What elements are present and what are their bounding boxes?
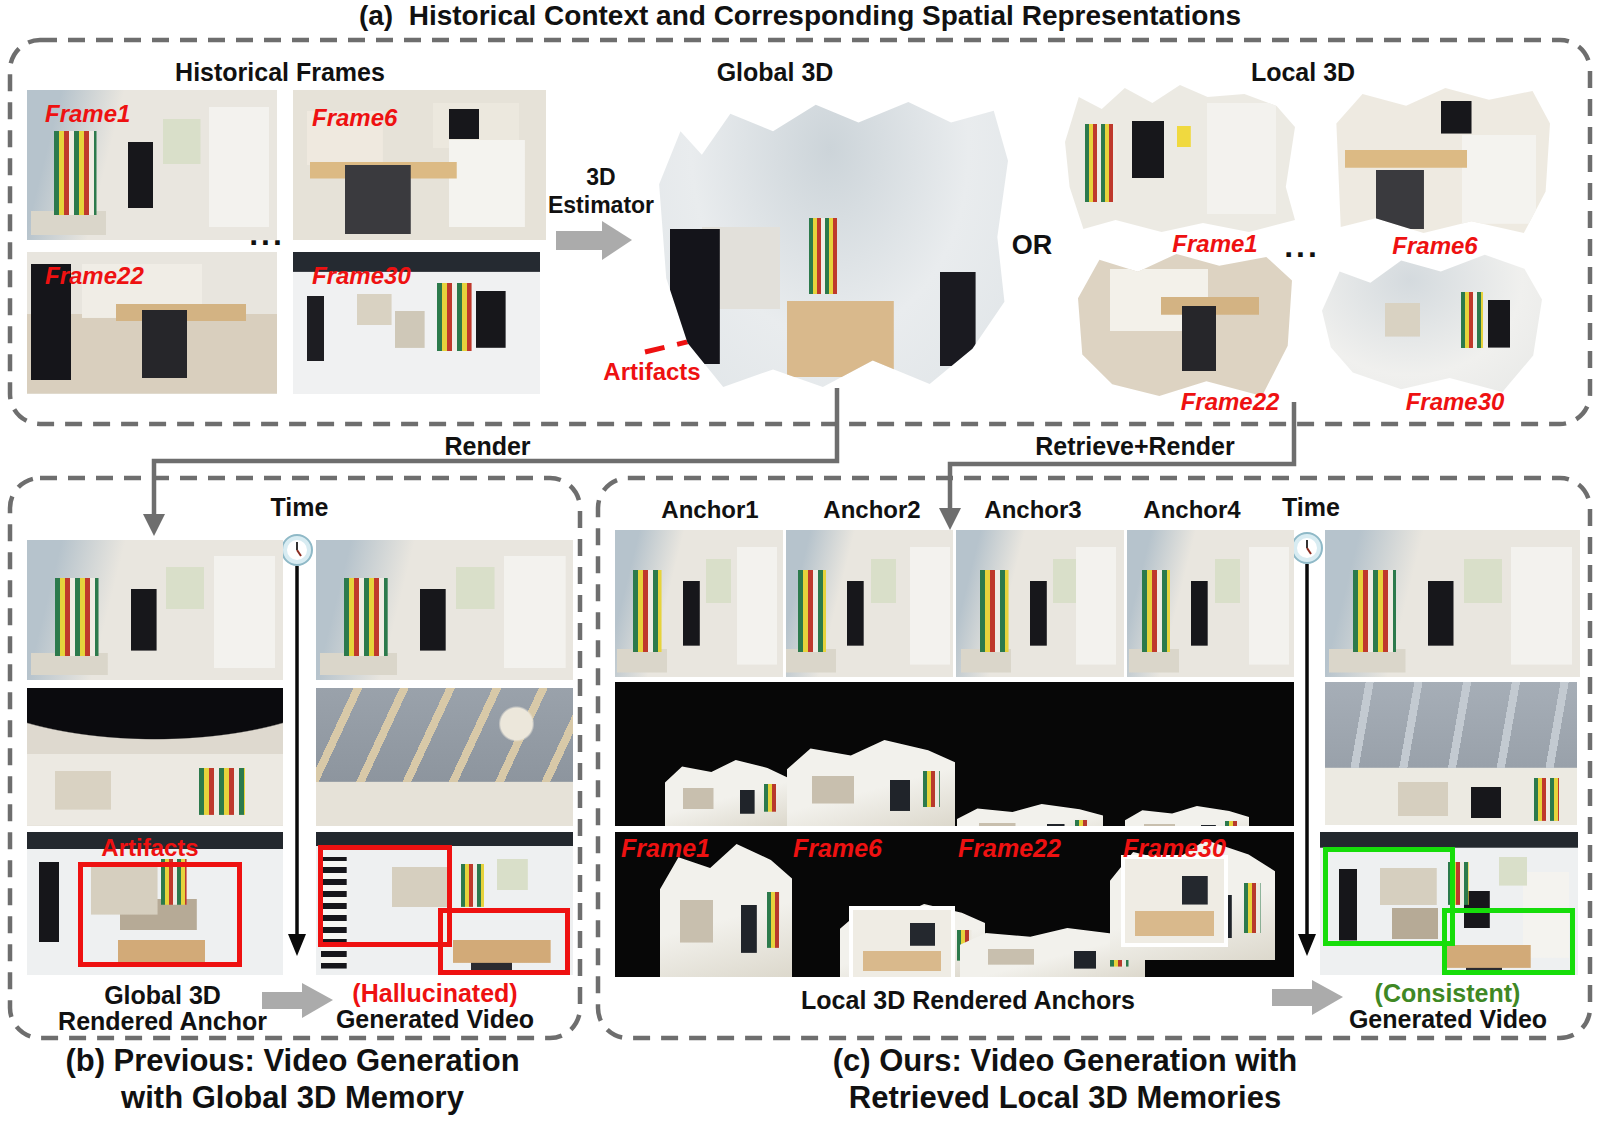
panel-c-arrow-icon [1272, 980, 1343, 1015]
local-3d-frame6-pointcloud [1332, 85, 1550, 233]
panel-b-anchor-frame-2 [27, 688, 283, 826]
estimator-label-line1: 3D [545, 164, 657, 190]
global-anchor-caption-line2: Rendered Anchor [40, 1007, 285, 1036]
strip-frame1-label: Frame1 [621, 834, 751, 863]
panel-b-anchor-frame-1 [27, 540, 283, 680]
artifacts-label-b: Artifacts [95, 834, 205, 862]
pointcloud-fragment [957, 804, 1103, 826]
anchor4-image [1127, 530, 1295, 677]
pointcloud-fragment [787, 740, 955, 826]
panel-b-video-frame-2 [316, 688, 573, 826]
figure-canvas: (a) Historical Context and Corresponding… [0, 0, 1600, 1123]
artifact-box-video-1 [318, 845, 452, 947]
pointcloud-fragment [660, 844, 792, 977]
anchor2-label: Anchor2 [812, 496, 932, 524]
panel-b-video-frame-1 [316, 540, 573, 680]
consistent-box-1 [1323, 847, 1455, 946]
local-3d-frame1-pointcloud [1065, 82, 1295, 232]
local-frame1-label: Frame1 [1155, 230, 1275, 258]
time-arrow-b-arrowhead [288, 934, 306, 956]
estimator-label-line2: Estimator [545, 192, 657, 218]
time-label-b: Time [262, 493, 337, 522]
local-3d-frame30-pointcloud [1322, 252, 1542, 392]
retrieve-connector-arrowhead [939, 508, 961, 530]
retrieved-inset-box-2 [1121, 855, 1228, 947]
generated-video-label-c: Generated Video [1338, 1005, 1558, 1034]
artifact-box-anchor [78, 862, 242, 967]
figure-title: (a) Historical Context and Corresponding… [0, 0, 1600, 32]
global-3d-pointcloud [652, 96, 1008, 390]
frame30-label: Frame30 [312, 262, 462, 290]
time-arrow-c-arrowhead [1298, 934, 1316, 956]
global-anchor-caption-line1: Global 3D [40, 981, 285, 1010]
local-3d-title: Local 3D [1238, 58, 1368, 87]
generated-video-label-b: Generated Video [325, 1005, 545, 1034]
consistent-box-2 [1442, 908, 1575, 975]
anchor2-image [786, 530, 954, 677]
anchor3-image [956, 530, 1124, 677]
historical-frames-ellipsis: ... [232, 216, 302, 253]
strip-frame6-label: Frame6 [793, 834, 923, 863]
strip-frame22-label: Frame22 [958, 834, 1098, 863]
render-label: Render [400, 432, 575, 461]
local-frame6-label: Frame6 [1375, 232, 1495, 260]
consistent-label: (Consistent) [1345, 979, 1550, 1008]
retrieved-inset-box-1 [849, 906, 955, 977]
anchor1-image [615, 530, 783, 677]
frame1-label: Frame1 [45, 100, 175, 128]
anchor3-label: Anchor3 [973, 496, 1093, 524]
panel-c-video-frame-1 [1325, 530, 1580, 677]
local-3d-render-strip-2: Frame1 Frame6 Frame22 Frame30 [615, 832, 1294, 977]
pointcloud-fragment [665, 760, 787, 826]
panel-b-footer-line1: (b) Previous: Video Generation [20, 1043, 565, 1079]
local-anchors-caption: Local 3D Rendered Anchors [768, 986, 1168, 1015]
artifact-box-video-2 [438, 908, 570, 975]
anchor1-label: Anchor1 [650, 496, 770, 524]
local-frame30-label: Frame30 [1390, 388, 1520, 416]
clock-icon-b [282, 535, 312, 565]
strip-frame30-label: Frame30 [1123, 834, 1263, 863]
local-3d-render-strip-1 [615, 682, 1294, 826]
hallucinated-label: (Hallucinated) [330, 979, 540, 1008]
historical-frames-title: Historical Frames [60, 58, 500, 87]
panel-c-footer-line1: (c) Ours: Video Generation with [790, 1043, 1340, 1079]
panel-b-footer-line2: with Global 3D Memory [20, 1080, 565, 1116]
local-3d-frame22-pointcloud [1078, 248, 1292, 396]
panel-c-footer-line2: Retrieved Local 3D Memories [790, 1080, 1340, 1116]
anchor4-label: Anchor4 [1132, 496, 1252, 524]
frame6-label: Frame6 [312, 104, 442, 132]
render-connector-arrowhead [143, 514, 165, 536]
local-frame22-label: Frame22 [1165, 388, 1295, 416]
pointcloud-fragment [1125, 806, 1249, 826]
anchors-strip [615, 530, 1294, 677]
retrieve-render-label: Retrieve+Render [1015, 432, 1255, 461]
local-3d-ellipsis: ... [1276, 228, 1328, 265]
clock-icon-c [1292, 533, 1322, 563]
global-3d-title: Global 3D [690, 58, 860, 87]
frame22-label: Frame22 [45, 262, 195, 290]
artifacts-label-a: Artifacts [592, 358, 712, 386]
estimator-arrow-icon [556, 221, 632, 260]
panel-c-video-frame-2 [1325, 682, 1577, 825]
or-label: OR [1000, 230, 1064, 261]
time-label-c: Time [1276, 493, 1346, 522]
